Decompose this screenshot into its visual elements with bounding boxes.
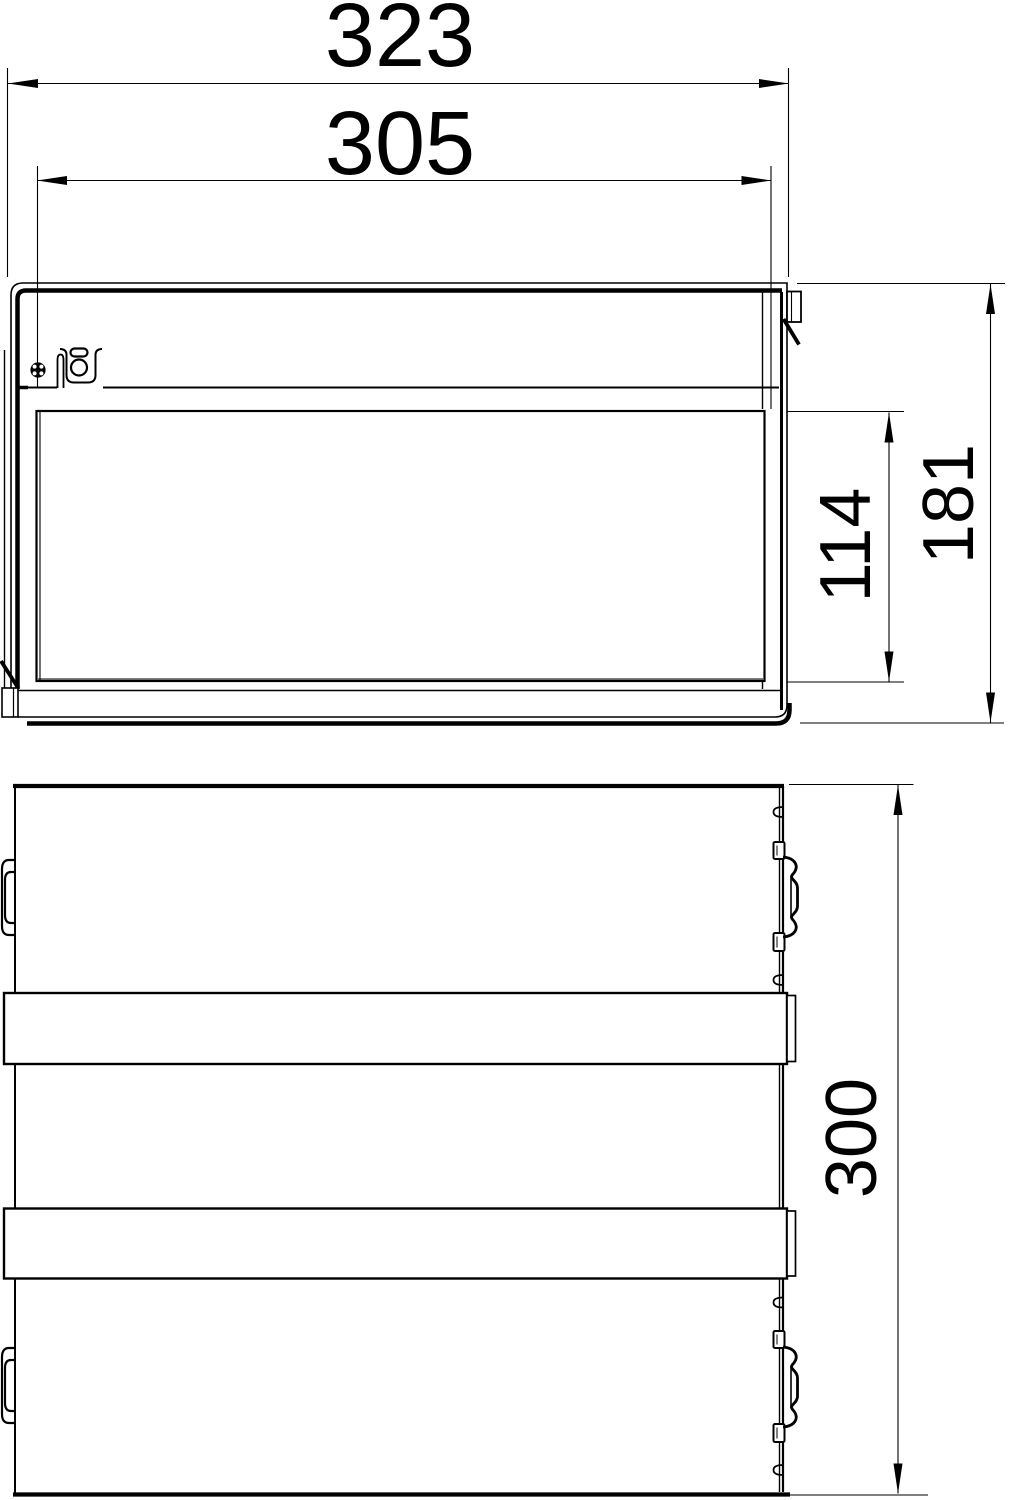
arrowhead-left — [8, 79, 38, 88]
arrowhead-bottom — [894, 1464, 903, 1494]
arrowhead-top — [894, 785, 903, 815]
right-spring-clip-upper — [783, 857, 798, 937]
dimension-value-overall-width: 323 — [325, 0, 475, 86]
front-right-latch — [787, 292, 801, 323]
bracket-slot — [71, 349, 88, 357]
arrowhead-right — [759, 79, 789, 88]
front-inner-window-inset — [38, 412, 763, 680]
mounting-rail-lower — [4, 1209, 796, 1279]
dimension-value-inner-height: 114 — [806, 488, 886, 603]
front-inner-window — [37, 411, 765, 681]
left-clip-upper — [2, 860, 15, 935]
left-clip-lower — [2, 1348, 15, 1423]
arrowhead-top — [986, 284, 995, 314]
front-view — [1, 283, 801, 724]
front-lid-edge — [18, 291, 783, 690]
dimension-value-depth: 300 — [812, 1078, 892, 1198]
arrowhead-top — [885, 413, 894, 443]
right-spring-clip-lower — [783, 1347, 798, 1427]
dimension-inner-width: 305 — [37, 94, 772, 409]
arrowhead-bottom — [885, 652, 894, 682]
arrowhead-left — [37, 176, 67, 185]
drawing-canvas: 323 305 114 181 300 — [0, 0, 1009, 1500]
top-view — [2, 784, 798, 1495]
front-bottom-shadow — [27, 703, 790, 724]
bracket-hole — [71, 360, 87, 376]
extension-lines — [38, 166, 772, 409]
cable-bracket — [58, 349, 103, 389]
arrowhead-right — [742, 176, 772, 185]
dimension-value-overall-height: 181 — [909, 444, 989, 564]
front-outer-shell — [11, 283, 787, 717]
dimension-value-inner-width: 305 — [325, 94, 475, 194]
rail-end-cap — [787, 1211, 796, 1276]
rail-end-cap — [787, 996, 796, 1062]
dimension-depth: 300 — [789, 785, 928, 1496]
arrowhead-bottom — [986, 693, 995, 723]
front-left-tab — [2, 688, 18, 717]
technical-drawing: 323 305 114 181 300 — [0, 0, 1009, 1500]
dimension-inner-height: 114 — [787, 412, 904, 683]
mounting-rail-upper — [4, 993, 796, 1064]
right-hooks — [774, 807, 784, 1475]
